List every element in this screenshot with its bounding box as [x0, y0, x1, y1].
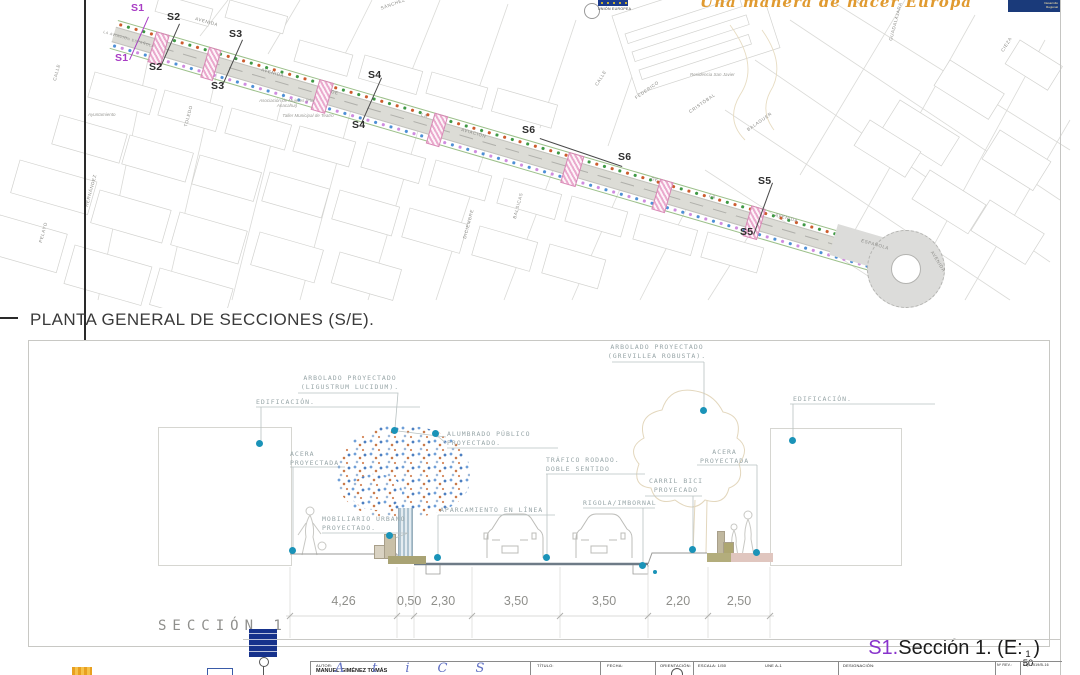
dim-value: 4,26: [290, 594, 397, 608]
label-carril-bici: CARRIL BICI PROYECADO: [647, 477, 705, 494]
dim-value: 2,20: [648, 594, 708, 608]
tree-outline-grevillea: [634, 390, 745, 553]
label-arbolado-right: ARBOLADO PROYECTADO (GREVILLEA ROBUSTA).: [607, 343, 707, 360]
ref-dot: [700, 407, 707, 414]
dim-value: 3,50: [472, 594, 560, 608]
titleblock-divider: [655, 661, 656, 675]
nrev-label: Nº REV.:: [997, 663, 1012, 667]
titleblock-divider: [693, 661, 694, 675]
titulo-label: TÍTULO:: [537, 663, 554, 668]
tree-pit-strip: [388, 556, 426, 564]
car-right: [573, 514, 632, 558]
bike-lane-strip: [707, 553, 731, 562]
ref-dot: [434, 554, 441, 561]
label-edificacion-left: EDIFICACIÓN.: [256, 398, 315, 407]
label-arbolado-left: ARBOLADO PROYECTADO (LIGUSTRUM LUCIDUM).: [300, 374, 400, 391]
label-edificacion-right: EDIFICACIÓN.: [793, 395, 852, 404]
north-compass-icon: [671, 668, 683, 675]
footer-rule: [243, 639, 1060, 640]
fecha-label: FECHA:: [607, 663, 623, 668]
titleblock-divider: [838, 661, 839, 675]
titleblock-divider: [1020, 661, 1021, 675]
logo-pin-stem: [263, 666, 264, 675]
section-caption-text: Sección 1. (E:: [898, 637, 1023, 659]
designacion-label: DESIGNACIÓN:: [843, 663, 875, 668]
titleblock-divider: [310, 661, 311, 675]
label-aparcamiento: APARCAMIENTO EN LÍNEA: [440, 506, 543, 515]
dimension-row: 4,26 0,50 2,30 3,50 3,50 2,20 2,50: [290, 594, 770, 608]
label-acera-left: ACERA PROYECTADA: [290, 450, 339, 467]
ref-dot: [689, 546, 696, 553]
partner-logo: [72, 667, 92, 675]
ref-dot: [789, 437, 796, 444]
label-acera-right: ACERA PROYECTADA: [700, 448, 749, 465]
partner-logo: [207, 668, 233, 675]
logo-pin-icon: [259, 657, 269, 667]
ref-dot: [386, 532, 393, 539]
formato-value: UNE A-1: [765, 663, 782, 668]
drawing-sheet: S1 S1 S2 S2 S3 S3 S4 S4 S6 S6 S5 S5 AVEN…: [0, 0, 1080, 675]
signature: AtiCS: [335, 661, 512, 675]
label-mobiliario: MOBILIARIO URBANO PROYECTADO.: [322, 515, 406, 532]
ref-dot: [432, 430, 439, 437]
titleblock-divider: [530, 661, 531, 675]
dim-value: 2,50: [708, 594, 770, 608]
label-trafico: TRÁFICO RODADO. DOBLE SENTIDO: [546, 456, 620, 473]
titleblock-divider: [600, 661, 601, 675]
dim-value: 2,30: [414, 594, 472, 608]
section-caption: S1.Sección 1. (E:150): [868, 637, 1040, 668]
label-rigola: RIGOLA/IMBORNAL: [583, 499, 657, 508]
car-left: [484, 514, 543, 558]
ref-dot: [653, 570, 657, 574]
company-logo: [249, 629, 277, 657]
ref-dot: [753, 549, 760, 556]
sidewalk-strip-right: [731, 553, 773, 562]
section-caption-ref: S1.: [868, 637, 898, 659]
dim-value: 3,50: [560, 594, 648, 608]
dim-value: 0,50: [397, 594, 414, 608]
ref-dot: [289, 547, 296, 554]
ref-dot: [391, 427, 398, 434]
ref-dot: [256, 440, 263, 447]
ref-dot: [543, 554, 550, 561]
exp-value: Exp 1519/B-16: [1023, 663, 1049, 667]
escala-value: ESCALA: 1/50: [698, 663, 726, 668]
section-linework: [0, 0, 1080, 675]
titleblock-divider: [995, 661, 996, 675]
ref-dot: [639, 562, 646, 569]
label-alumbrado: ALUMBRADO PÚBLICO PROYECTADO.: [447, 430, 531, 447]
